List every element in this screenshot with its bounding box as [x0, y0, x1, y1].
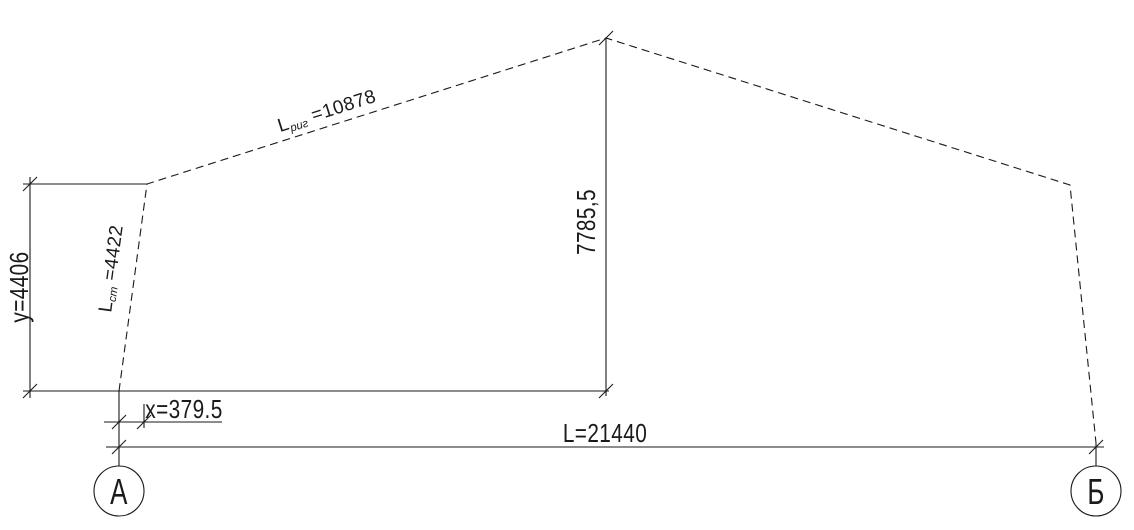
- eave-height-dimension-label: y=4406: [6, 251, 32, 322]
- rafter-length-subscript: риг: [289, 117, 310, 134]
- column-offset-dimension-label: x=379.5: [145, 396, 222, 422]
- total-height-dimension-label: 7785,5: [573, 189, 599, 255]
- axis-marker-a-label: А: [110, 474, 128, 510]
- span-dimension-label: L=21440: [563, 420, 647, 446]
- rafter-length-value: =10878: [303, 86, 379, 128]
- column-length-value: =4422: [99, 224, 128, 288]
- column-length-subscript: ст: [106, 286, 120, 303]
- drawing-lines: [0, 0, 1134, 530]
- frame-geometry-drawing: L=21440 x=379.5 y=4406 7785,5 Lриг =1087…: [0, 0, 1134, 530]
- frame-outline-dashed: [119, 38, 1096, 443]
- axis-marker-b-label: Б: [1087, 474, 1104, 510]
